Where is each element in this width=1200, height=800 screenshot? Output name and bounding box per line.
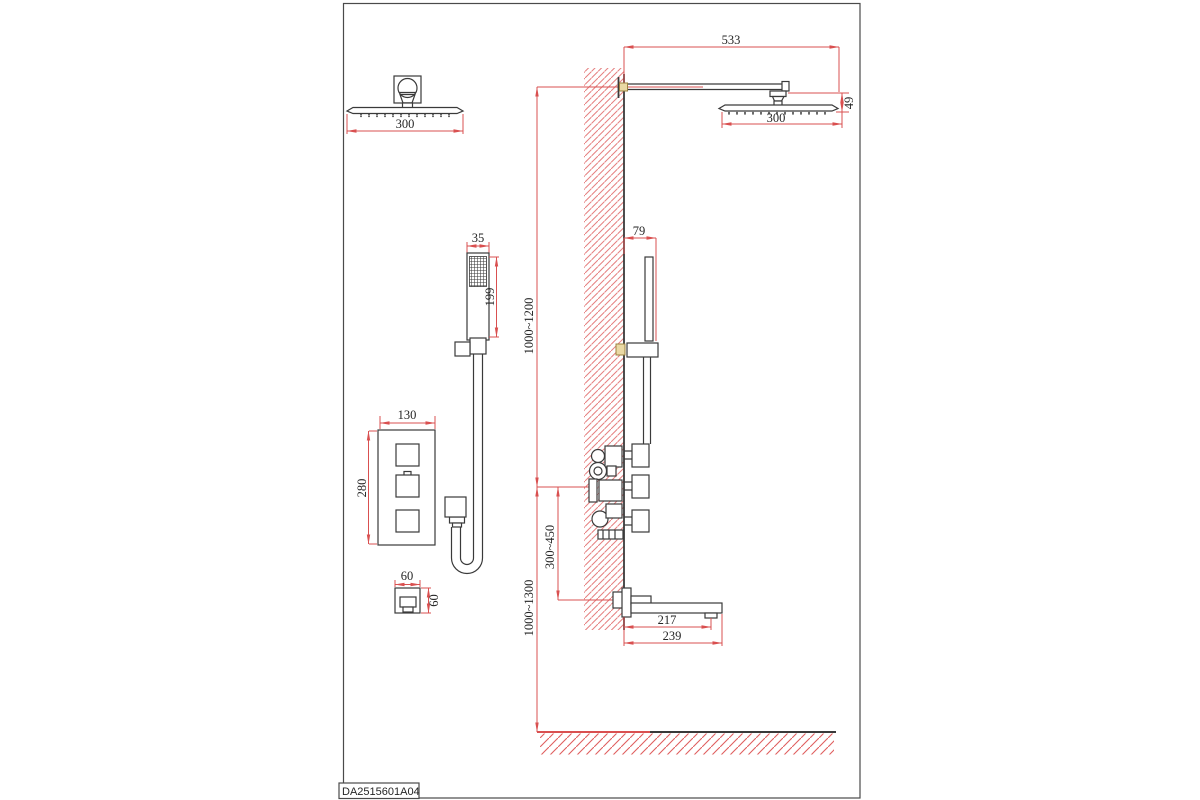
dim-mixer-height: 280 <box>355 479 369 498</box>
dim-spout-outlet-reach: 217 <box>658 613 677 627</box>
dim-head-width-front: 300 <box>396 117 415 131</box>
dim-hand-width: 35 <box>472 231 485 245</box>
overhead-shower-side-view: 533 300 49 <box>619 33 857 128</box>
dim-spout-total-reach: 239 <box>663 629 682 643</box>
shower-hose <box>452 354 483 574</box>
hose-nut <box>450 517 465 523</box>
mixer-knob-side-2 <box>632 475 649 498</box>
dim-mixer-to-head: 1000~1200 <box>522 298 536 355</box>
holder-arm-side <box>627 343 658 357</box>
hose-outlet-block <box>445 497 466 517</box>
overhead-shower-front-view: 300 <box>347 76 463 134</box>
dim-floor-to-mixer: 1000~1300 <box>522 580 536 637</box>
wall-anchor <box>620 83 628 91</box>
drawing-code: DA2515601A04 <box>342 786 420 798</box>
tub-spout-side-view: 217 239 <box>613 588 722 646</box>
holder-bracket <box>455 342 470 356</box>
holder-cone <box>470 338 486 354</box>
mixer-front-view: 130 280 <box>355 408 435 545</box>
valve-cartridge-mid <box>590 463 607 480</box>
hose-outlet-front-view: 60 60 <box>395 569 441 613</box>
shower-head-plate <box>347 108 463 114</box>
hand-shower-handle-side <box>645 257 653 341</box>
hand-shower-front-view: 35 199 <box>445 231 499 574</box>
title-block: DA2515601A04 <box>339 783 420 799</box>
spray-face <box>470 257 487 287</box>
dim-head-drop: 49 <box>842 97 856 110</box>
dim-hand-wall-offset: 79 <box>633 224 646 238</box>
mixer-knob-3 <box>396 510 419 532</box>
valve-cartridge-top <box>592 450 605 463</box>
wall-section <box>537 68 836 755</box>
mixer-knob-side-3 <box>632 510 649 532</box>
mixer-knob-side-1 <box>632 444 649 467</box>
dim-head-width-side: 300 <box>767 111 786 125</box>
spout-body <box>631 603 722 613</box>
wall-bracket-anchor <box>616 344 625 355</box>
shower-system-drawing: 1000~1200 300~450 1000~1300 300 533 <box>0 0 1200 800</box>
technical-drawing-page: 1000~1200 300~450 1000~1300 300 533 <box>0 0 1200 800</box>
mixer-knob-1 <box>396 444 419 466</box>
floor-hatch <box>540 734 834 755</box>
spout-wall-plate <box>622 588 631 617</box>
dim-hand-length: 199 <box>483 288 497 307</box>
dim-mixer-to-spout: 300~450 <box>543 525 557 569</box>
spout-outlet-nub <box>705 613 717 618</box>
dim-mixer-width: 130 <box>398 408 417 422</box>
arm-end-cap <box>782 82 789 92</box>
dim-outlet-width: 60 <box>401 569 414 583</box>
mixer-knob-2 <box>396 475 419 497</box>
dim-arm-reach: 533 <box>722 33 741 47</box>
dim-outlet-height: 60 <box>427 594 441 607</box>
